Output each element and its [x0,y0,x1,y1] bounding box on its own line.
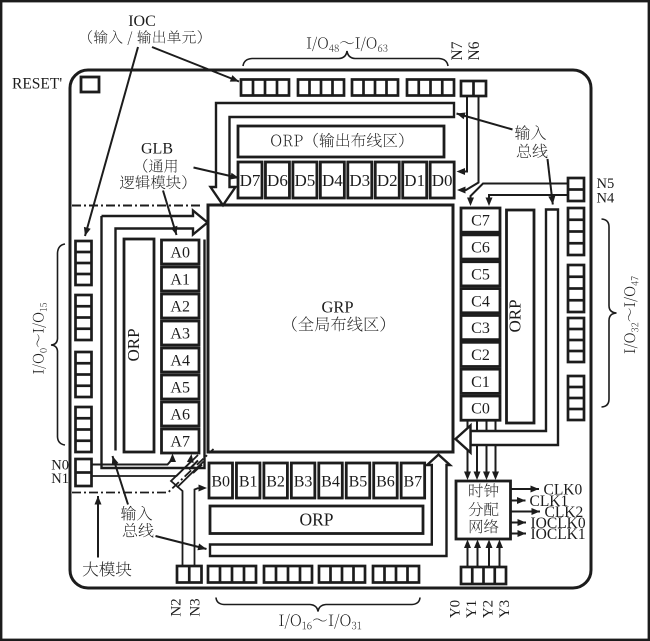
svg-text:A4: A4 [170,353,190,370]
svg-text:C6: C6 [471,240,490,257]
svg-text:B6: B6 [376,474,395,491]
svg-text:A6: A6 [170,407,190,424]
svg-text:C4: C4 [471,293,490,310]
svg-text:D7: D7 [240,171,261,190]
svg-text:C5: C5 [471,266,490,283]
svg-text:ORP: ORP [124,328,143,361]
svg-text:ORP: ORP [299,510,333,530]
svg-text:C1: C1 [471,374,490,391]
svg-text:ORP: ORP [506,299,525,332]
svg-text:C7: C7 [471,213,490,230]
svg-text:GLB: GLB [141,141,173,158]
svg-text:Y0: Y0 [448,600,464,618]
svg-text:D2: D2 [377,171,398,190]
svg-text:D4: D4 [322,171,343,190]
svg-text:A7: A7 [170,434,190,451]
svg-text:N2: N2 [169,598,185,616]
svg-text:IOCLK1: IOCLK1 [531,526,586,543]
svg-text:Y1: Y1 [464,600,480,618]
svg-text:A0: A0 [170,245,190,262]
svg-text:N6: N6 [466,41,483,60]
svg-text:A3: A3 [170,326,190,343]
svg-text:B4: B4 [321,474,340,491]
svg-text:C3: C3 [471,320,490,337]
svg-text:RESET': RESET' [12,76,62,93]
svg-text:C0: C0 [471,401,490,418]
svg-text:D1: D1 [404,171,425,190]
svg-text:D3: D3 [349,171,370,190]
svg-text:A2: A2 [170,299,190,316]
svg-text:D6: D6 [267,171,288,190]
svg-text:A1: A1 [170,272,190,289]
svg-text:C2: C2 [471,347,490,364]
svg-text:A5: A5 [170,380,190,397]
svg-text:N1: N1 [51,471,69,487]
svg-text:IOC: IOC [128,13,156,30]
svg-text:GRP: GRP [321,298,353,317]
svg-text:B5: B5 [349,474,368,491]
svg-text:B1: B1 [239,474,258,491]
svg-text:D0: D0 [432,171,453,190]
svg-text:D5: D5 [295,171,316,190]
svg-text:B3: B3 [294,474,313,491]
svg-text:B2: B2 [266,474,285,491]
svg-text:N7: N7 [449,41,466,60]
svg-text:Y2: Y2 [481,600,497,618]
svg-text:B0: B0 [211,474,230,491]
svg-text:Y3: Y3 [497,600,513,618]
svg-text:N4: N4 [597,191,615,207]
svg-text:N3: N3 [188,598,204,616]
svg-text:B7: B7 [404,474,423,491]
